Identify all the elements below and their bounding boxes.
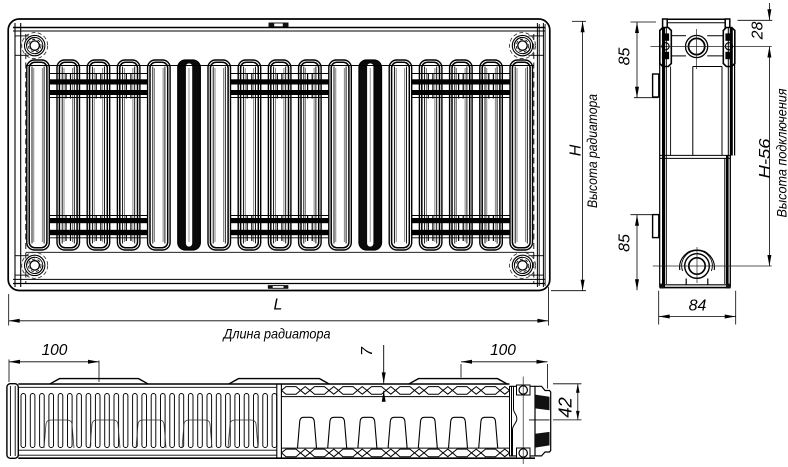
svg-text:85: 85 <box>617 48 634 66</box>
svg-text:7: 7 <box>359 346 376 356</box>
svg-text:Высота подключения: Высота подключения <box>775 89 788 218</box>
svg-text:100: 100 <box>490 342 516 359</box>
svg-text:L: L <box>274 297 283 314</box>
svg-text:H-56: H-56 <box>757 138 774 178</box>
svg-text:85: 85 <box>617 234 634 252</box>
svg-text:42: 42 <box>555 397 576 418</box>
svg-text:100: 100 <box>42 342 68 359</box>
svg-text:H: H <box>568 144 585 156</box>
svg-text:Высота радиатора: Высота радиатора <box>584 94 600 208</box>
svg-text:84: 84 <box>689 298 707 315</box>
svg-text:28: 28 <box>750 22 767 41</box>
svg-text:Длина радиатора: Длина радиатора <box>222 326 331 342</box>
